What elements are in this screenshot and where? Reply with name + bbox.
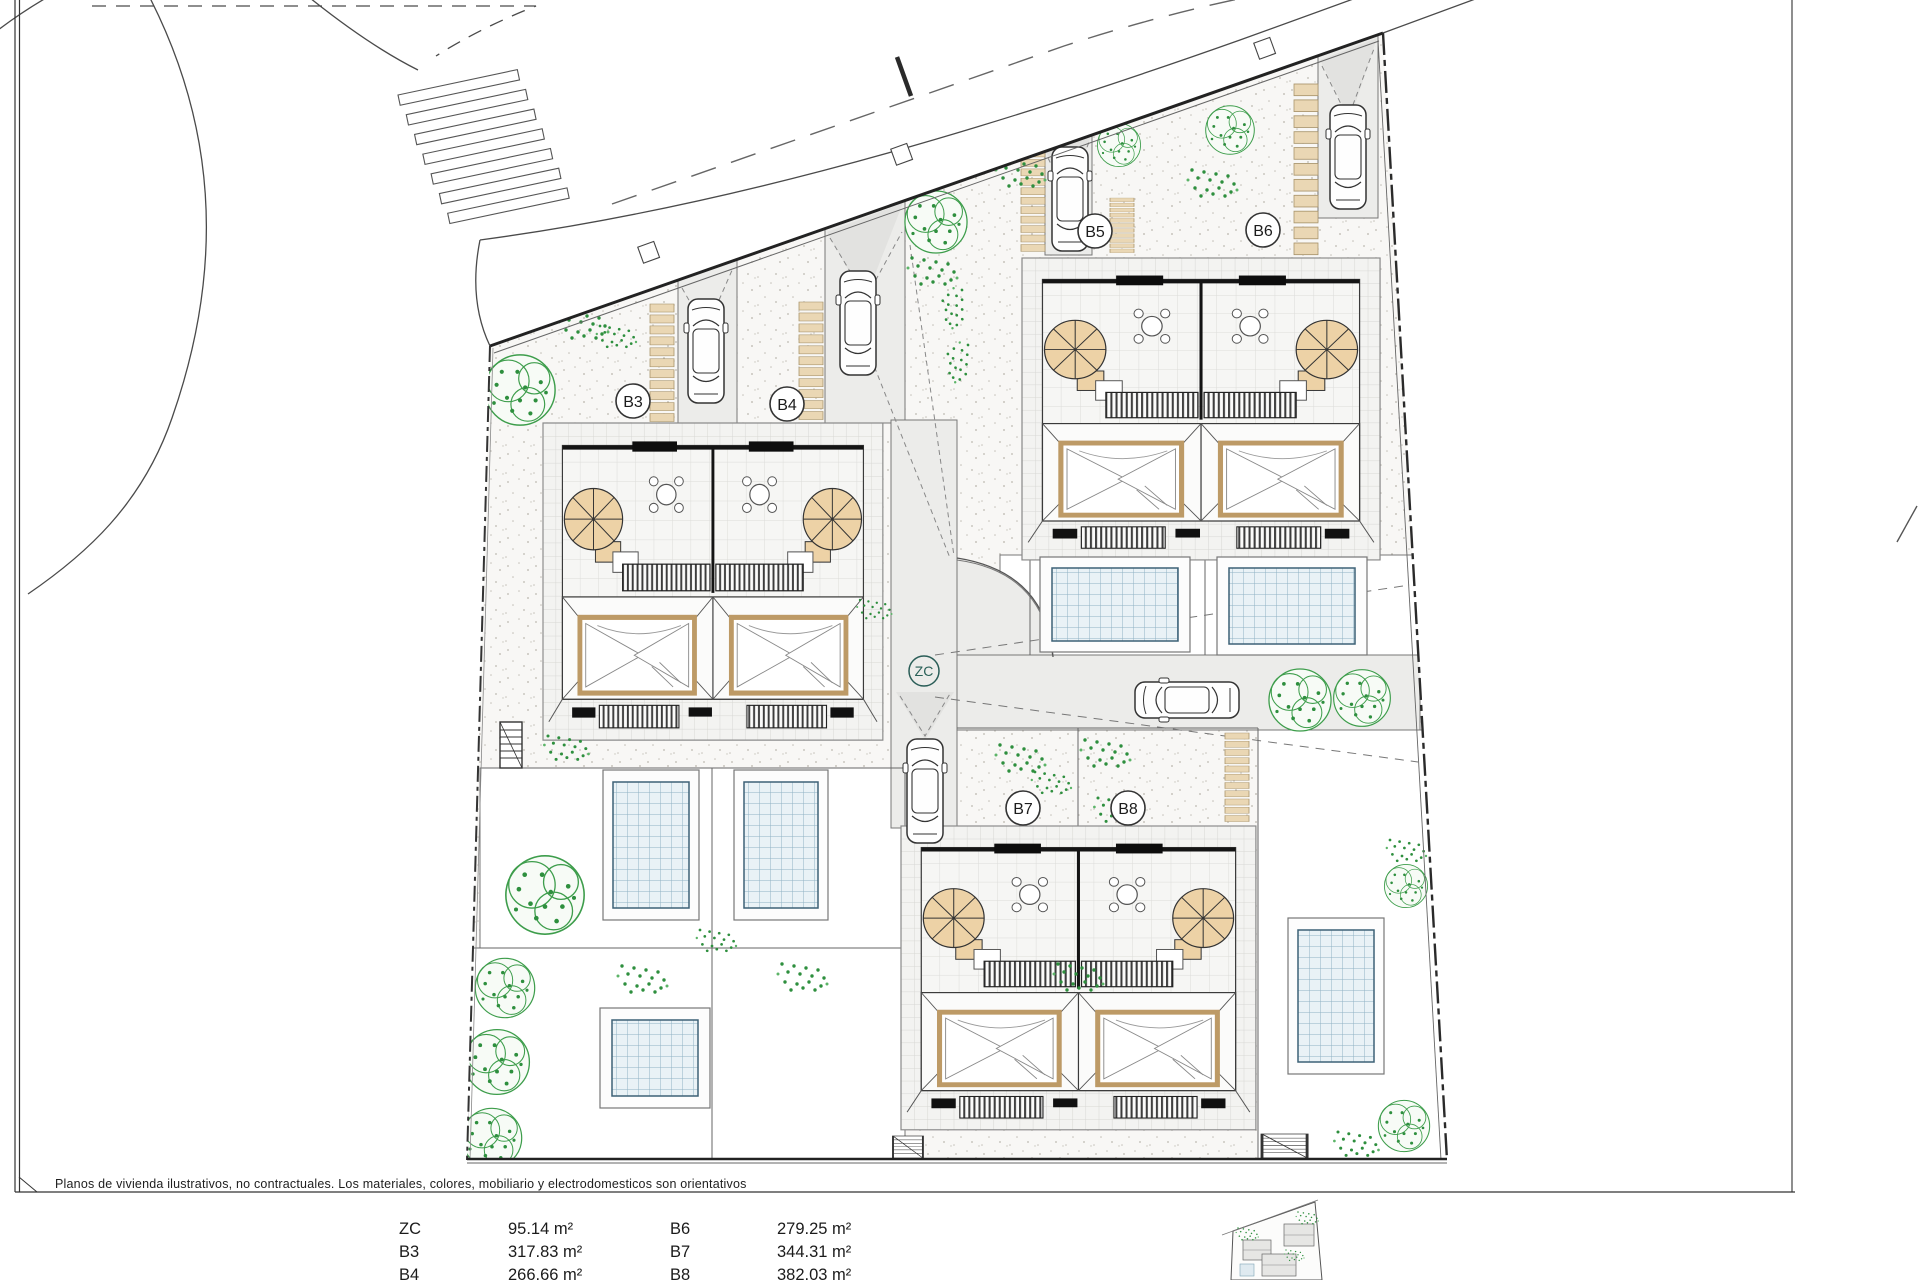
- label-b6: B6: [1246, 213, 1280, 247]
- pool-right-garden: [1288, 918, 1384, 1074]
- road-curb-to-parcel: [476, 240, 490, 346]
- building-b5-b6: [1022, 258, 1380, 560]
- pool-b6: [1217, 557, 1367, 655]
- pool-b4: [734, 770, 828, 920]
- svg-text:B8: B8: [1118, 801, 1138, 818]
- car-b3: [684, 299, 728, 403]
- label-b3: B3: [616, 384, 650, 418]
- building-b3-b4: [543, 423, 883, 740]
- label-b4: B4: [770, 387, 804, 421]
- site-plan-drawing: B3 B4 B5 B6 B7 B8 ZC: [0, 0, 1920, 1280]
- road-curve-left: [28, 0, 206, 594]
- road-curve-corner: [0, 0, 46, 30]
- svg-text:B3: B3: [623, 394, 643, 411]
- car-zc-lane: [1135, 678, 1239, 722]
- car-b7: [903, 739, 947, 843]
- svg-text:B7: B7: [1013, 801, 1033, 818]
- mini-location-map: [1222, 1200, 1322, 1280]
- car-entry: [836, 271, 880, 375]
- label-b7: B7: [1006, 791, 1040, 825]
- svg-text:B6: B6: [1253, 223, 1273, 240]
- label-b8: B8: [1111, 791, 1145, 825]
- pool-b5: [1040, 557, 1190, 652]
- road-curve-top: [310, 0, 418, 70]
- svg-text:ZC: ZC: [915, 663, 934, 679]
- car-b6: [1326, 105, 1370, 209]
- pool-bottom-left: [600, 1008, 710, 1108]
- svg-text:B4: B4: [777, 397, 797, 414]
- label-b5: B5: [1078, 214, 1112, 248]
- road-dashed-top: [92, 6, 536, 56]
- crosswalk: [398, 65, 569, 229]
- svg-text:B5: B5: [1085, 224, 1105, 241]
- parcel-interior: B3 B4 B5 B6 B7 B8 ZC: [462, 33, 1450, 1168]
- pool-b3: [603, 770, 699, 920]
- road-edge-extension: [1383, 0, 1478, 33]
- road-stop-tick: [897, 57, 911, 96]
- building-b7-b8: [901, 826, 1256, 1130]
- site-plan-sheet: B3 B4 B5 B6 B7 B8 ZC: [0, 0, 1920, 1280]
- label-zc: ZC: [909, 656, 939, 686]
